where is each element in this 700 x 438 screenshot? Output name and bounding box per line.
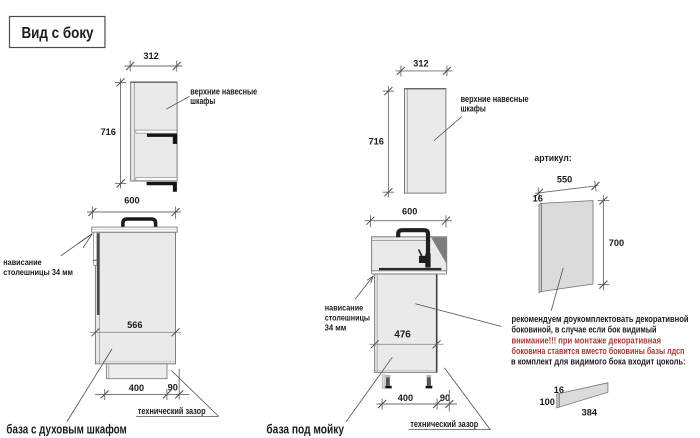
svg-text:технический зазор: технический зазор <box>410 419 478 429</box>
svg-text:нависание: нависание <box>325 303 364 313</box>
svg-text:шкафы: шкафы <box>461 104 487 114</box>
svg-text:технический зазор: технический зазор <box>138 406 206 416</box>
svg-text:база под мойку: база под мойку <box>266 422 344 436</box>
svg-text:566: 566 <box>127 320 142 330</box>
svg-text:Вид с боку: Вид с боку <box>22 25 94 42</box>
svg-text:400: 400 <box>129 383 144 393</box>
svg-text:400: 400 <box>398 393 413 403</box>
svg-text:312: 312 <box>413 59 428 69</box>
svg-text:716: 716 <box>101 127 116 137</box>
svg-text:90: 90 <box>440 393 450 403</box>
svg-text:476: 476 <box>394 329 411 340</box>
svg-text:верхние навесные: верхние навесные <box>461 94 529 104</box>
svg-text:боковина ставится вместо боков: боковина ставится вместо боковины базы л… <box>512 346 685 357</box>
svg-text:384: 384 <box>582 408 598 418</box>
svg-text:артикул:: артикул: <box>534 153 571 164</box>
svg-text:100: 100 <box>540 397 555 407</box>
svg-text:верхние навесные: верхние навесные <box>190 86 257 96</box>
svg-text:90: 90 <box>168 383 178 393</box>
svg-text:нависание: нависание <box>3 257 42 267</box>
svg-text:столешницы: столешницы <box>325 313 370 323</box>
svg-text:600: 600 <box>402 207 417 217</box>
svg-text:16: 16 <box>533 193 543 203</box>
svg-text:600: 600 <box>124 196 139 206</box>
svg-text:550: 550 <box>557 174 572 184</box>
svg-text:716: 716 <box>369 136 384 146</box>
svg-text:700: 700 <box>609 238 624 248</box>
svg-text:база с духовым шкафом: база с духовым шкафом <box>6 422 126 436</box>
svg-text:312: 312 <box>143 51 158 61</box>
svg-text:34 мм: 34 мм <box>325 323 347 333</box>
svg-text:столешницы 34 мм: столешницы 34 мм <box>3 267 73 277</box>
svg-text:шкафы: шкафы <box>190 96 215 106</box>
svg-text:рекомендуем доукомплектовать д: рекомендуем доукомплектовать декоративно… <box>512 314 689 325</box>
svg-text:в комплект для видимого бока в: в комплект для видимого бока входит цоко… <box>511 356 686 367</box>
svg-text:боковиной, в случае если бок в: боковиной, в случае если бок видимый <box>512 324 657 335</box>
